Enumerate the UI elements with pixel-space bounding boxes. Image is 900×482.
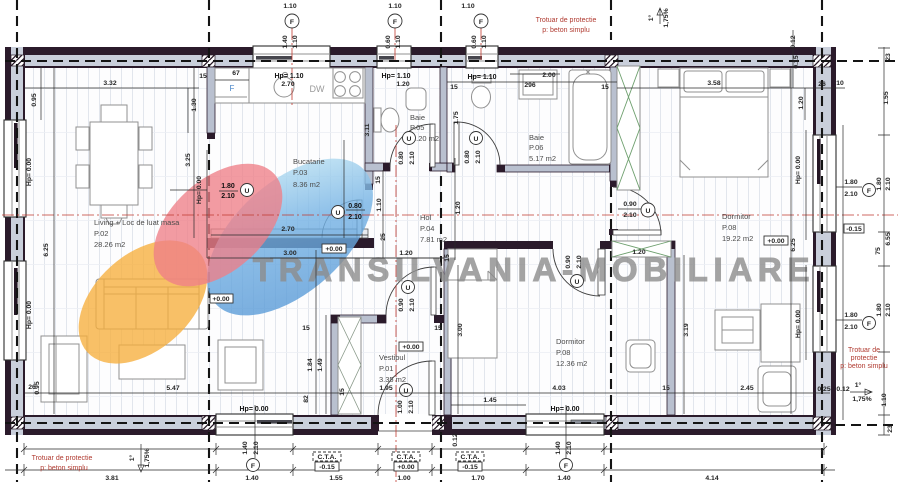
- svg-text:296: 296: [524, 82, 536, 89]
- svg-text:Hp= 0.00: Hp= 0.00: [26, 301, 33, 329]
- svg-text:1.70: 1.70: [471, 475, 484, 482]
- svg-text:2.10: 2.10: [348, 214, 362, 221]
- svg-text:2.10: 2.10: [409, 298, 416, 311]
- svg-text:26: 26: [818, 81, 826, 88]
- svg-text:1.55: 1.55: [329, 475, 342, 482]
- svg-text:1.10: 1.10: [481, 35, 488, 48]
- svg-text:1.10: 1.10: [292, 35, 299, 48]
- svg-text:1.40: 1.40: [555, 441, 562, 454]
- svg-text:DW: DW: [310, 84, 325, 94]
- svg-text:F: F: [290, 19, 294, 26]
- svg-text:1.40: 1.40: [245, 475, 258, 482]
- svg-text:Trotuar de: Trotuar de: [848, 347, 880, 354]
- svg-text:7.81 m2: 7.81 m2: [420, 235, 447, 244]
- svg-text:Living + Loc de luat masa: Living + Loc de luat masa: [94, 218, 180, 227]
- svg-text:2.10: 2.10: [885, 177, 892, 190]
- svg-text:0.95: 0.95: [31, 93, 38, 106]
- svg-text:Hp= 0.00: Hp= 0.00: [240, 406, 269, 413]
- svg-text:U: U: [406, 285, 411, 292]
- svg-text:1.40: 1.40: [242, 441, 249, 454]
- svg-text:23: 23: [887, 425, 894, 433]
- svg-text:+0.00: +0.00: [212, 296, 229, 303]
- svg-text:1.49: 1.49: [317, 358, 324, 371]
- svg-text:2.10: 2.10: [221, 193, 235, 200]
- svg-text:12.36 m2: 12.36 m2: [556, 359, 587, 368]
- svg-text:U: U: [404, 388, 409, 395]
- svg-text:Baie: Baie: [529, 133, 544, 142]
- svg-text:+0.00: +0.00: [397, 464, 414, 471]
- svg-text:F: F: [393, 19, 397, 26]
- svg-text:TRANSILVANIA-MOBILIARE: TRANSILVANIA-MOBILIARE: [253, 251, 815, 288]
- svg-text:67: 67: [232, 70, 240, 77]
- svg-text:4.03: 4.03: [552, 385, 565, 392]
- svg-text:1.80: 1.80: [844, 312, 857, 319]
- svg-text:F: F: [564, 463, 568, 470]
- svg-text:0.15: 0.15: [793, 55, 800, 68]
- svg-text:F: F: [251, 463, 255, 470]
- svg-text:1.10: 1.10: [881, 393, 888, 406]
- svg-text:U: U: [245, 188, 250, 195]
- svg-text:3.11: 3.11: [364, 123, 371, 136]
- svg-text:Hp= 0.00: Hp= 0.00: [196, 176, 203, 204]
- svg-text:4.14: 4.14: [705, 475, 718, 482]
- svg-text:0.80: 0.80: [464, 150, 471, 163]
- svg-text:Bucatarie: Bucatarie: [293, 157, 325, 166]
- svg-text:Hol: Hol: [420, 213, 432, 222]
- svg-text:Trotuar de protectie: Trotuar de protectie: [32, 455, 93, 462]
- svg-text:P.01: P.01: [379, 364, 393, 373]
- svg-text:1.40: 1.40: [557, 475, 570, 482]
- svg-text:1°: 1°: [128, 454, 136, 461]
- svg-text:1.20: 1.20: [396, 81, 409, 88]
- svg-text:0.25: 0.25: [817, 386, 830, 393]
- svg-text:1.80: 1.80: [876, 177, 883, 190]
- svg-text:U: U: [575, 279, 580, 286]
- svg-text:0.12: 0.12: [790, 35, 797, 48]
- svg-text:19.22 m2: 19.22 m2: [722, 234, 753, 243]
- svg-text:U: U: [336, 210, 341, 217]
- svg-text:10: 10: [836, 80, 844, 87]
- svg-text:-0.15: -0.15: [319, 464, 335, 471]
- svg-text:C.T.A.: C.T.A.: [461, 454, 480, 461]
- svg-text:5.47: 5.47: [166, 385, 179, 392]
- svg-text:Hp= 0.00: Hp= 0.00: [26, 158, 33, 186]
- svg-text:Dormitor: Dormitor: [556, 337, 585, 346]
- svg-text:U: U: [646, 208, 651, 215]
- svg-text:2.10: 2.10: [576, 255, 583, 268]
- svg-text:1.10: 1.10: [395, 35, 402, 48]
- svg-text:1.80: 1.80: [221, 183, 235, 190]
- svg-text:2.10: 2.10: [408, 400, 415, 413]
- svg-text:1.20: 1.20: [632, 249, 645, 256]
- svg-text:P.04: P.04: [420, 224, 434, 233]
- svg-text:28.26 m2: 28.26 m2: [94, 240, 125, 249]
- svg-text:23: 23: [885, 53, 892, 61]
- svg-text:C.T.A.: C.T.A.: [318, 454, 337, 461]
- svg-text:15: 15: [199, 73, 207, 80]
- svg-text:Hp= 0.00: Hp= 0.00: [795, 156, 802, 184]
- svg-text:2.45: 2.45: [740, 385, 753, 392]
- svg-text:1.00: 1.00: [397, 475, 410, 482]
- svg-text:1.10: 1.10: [376, 198, 383, 211]
- svg-text:1.84: 1.84: [307, 358, 314, 371]
- svg-text:Hp= 1.10: Hp= 1.10: [275, 73, 304, 80]
- svg-text:P.08: P.08: [556, 348, 570, 357]
- svg-text:0.80: 0.80: [348, 203, 362, 210]
- svg-text:Baie: Baie: [410, 113, 425, 122]
- svg-text:82: 82: [303, 395, 310, 403]
- svg-text:1.40: 1.40: [282, 35, 289, 48]
- svg-text:P.03: P.03: [293, 168, 307, 177]
- svg-text:Vestibul: Vestibul: [379, 353, 406, 362]
- svg-text:P.06: P.06: [529, 143, 543, 152]
- svg-text:3.00: 3.00: [283, 250, 296, 257]
- svg-text:1°: 1°: [647, 14, 655, 21]
- svg-text:1,75%: 1,75%: [144, 448, 151, 467]
- svg-text:Trotuar de protectie: Trotuar de protectie: [536, 17, 597, 24]
- svg-text:2.70: 2.70: [281, 226, 294, 233]
- svg-text:2.70: 2.70: [281, 81, 294, 88]
- svg-text:1,75%: 1,75%: [663, 8, 670, 27]
- svg-text:0.90: 0.90: [623, 201, 636, 208]
- svg-text:1.75: 1.75: [453, 111, 460, 124]
- svg-text:+0.00: +0.00: [325, 246, 342, 253]
- svg-text:1.20: 1.20: [455, 201, 462, 214]
- svg-text:0.95: 0.95: [34, 381, 41, 394]
- svg-text:2.10: 2.10: [409, 151, 416, 164]
- svg-text:p: beton simplu: p: beton simplu: [542, 27, 590, 34]
- svg-text:0.60: 0.60: [385, 35, 392, 48]
- svg-text:2.00: 2.00: [542, 72, 555, 79]
- svg-text:1.20: 1.20: [798, 96, 805, 109]
- svg-text:8.36 m2: 8.36 m2: [293, 180, 320, 189]
- svg-text:Hp= 0.00: Hp= 0.00: [551, 406, 580, 413]
- svg-text:5.17 m2: 5.17 m2: [529, 154, 556, 163]
- svg-text:1.45: 1.45: [483, 397, 496, 404]
- svg-text:0.12: 0.12: [452, 433, 459, 446]
- svg-text:15: 15: [444, 254, 451, 262]
- svg-text:0.90: 0.90: [398, 298, 405, 311]
- svg-text:0.60: 0.60: [471, 35, 478, 48]
- svg-text:2.10: 2.10: [844, 191, 857, 198]
- svg-text:1.10: 1.10: [461, 3, 474, 10]
- svg-text:P.08: P.08: [722, 223, 736, 232]
- svg-text:P.02: P.02: [94, 229, 108, 238]
- svg-text:15: 15: [450, 84, 458, 91]
- svg-text:2.20 m2: 2.20 m2: [412, 134, 439, 143]
- svg-text:U: U: [474, 136, 479, 143]
- svg-text:3.58: 3.58: [707, 80, 720, 87]
- svg-text:Dormitor: Dormitor: [722, 212, 751, 221]
- svg-text:Hp= 1.10: Hp= 1.10: [382, 73, 411, 80]
- svg-text:0.12: 0.12: [836, 386, 849, 393]
- svg-text:3.35 m2: 3.35 m2: [379, 375, 406, 384]
- svg-text:0.90: 0.90: [565, 255, 572, 268]
- svg-text:2.10: 2.10: [253, 441, 260, 454]
- svg-text:15: 15: [434, 325, 442, 332]
- svg-text:+0.00: +0.00: [767, 238, 784, 245]
- svg-text:-0.15: -0.15: [846, 226, 862, 233]
- svg-text:C.T.A.: C.T.A.: [397, 454, 416, 461]
- svg-text:1.20: 1.20: [399, 250, 412, 257]
- svg-text:3.25: 3.25: [185, 153, 192, 166]
- svg-text:1.55: 1.55: [883, 91, 890, 104]
- svg-text:-0.15: -0.15: [462, 464, 478, 471]
- svg-text:F: F: [230, 84, 235, 93]
- svg-text:1.30: 1.30: [191, 98, 198, 111]
- svg-text:3.32: 3.32: [103, 80, 116, 87]
- svg-text:75: 75: [875, 247, 882, 255]
- svg-text:0.80: 0.80: [398, 151, 405, 164]
- svg-text:6.25: 6.25: [43, 243, 50, 256]
- svg-text:1.10: 1.10: [388, 3, 401, 10]
- svg-text:p: beton simplu: p: beton simplu: [840, 363, 888, 370]
- svg-text:1.95: 1.95: [379, 385, 392, 392]
- svg-text:+0.00: +0.00: [402, 344, 419, 351]
- svg-text:2.10: 2.10: [844, 324, 857, 331]
- svg-text:1.10: 1.10: [283, 3, 296, 10]
- svg-text:p: beton simplu: p: beton simplu: [40, 465, 88, 472]
- svg-text:6.55: 6.55: [885, 232, 892, 245]
- svg-text:1,75%: 1,75%: [852, 396, 871, 403]
- svg-text:Hp= 0.00: Hp= 0.00: [795, 310, 802, 338]
- svg-text:2.10: 2.10: [885, 303, 892, 316]
- svg-text:F: F: [867, 321, 871, 328]
- svg-text:15: 15: [662, 385, 670, 392]
- svg-text:1°: 1°: [855, 381, 862, 389]
- svg-text:1.00: 1.00: [397, 400, 404, 413]
- svg-text:2.10: 2.10: [566, 441, 573, 454]
- svg-text:25: 25: [380, 233, 387, 241]
- svg-text:15: 15: [601, 84, 609, 91]
- svg-text:15: 15: [339, 388, 346, 396]
- svg-text:Hp= 1.10: Hp= 1.10: [468, 74, 497, 81]
- svg-text:F: F: [867, 188, 871, 195]
- svg-text:2.10: 2.10: [623, 212, 636, 219]
- svg-text:2.10: 2.10: [475, 150, 482, 163]
- svg-text:15: 15: [302, 325, 310, 332]
- svg-text:15: 15: [375, 176, 382, 184]
- svg-text:1.80: 1.80: [876, 303, 883, 316]
- svg-text:1.80: 1.80: [844, 179, 857, 186]
- svg-text:U: U: [407, 136, 412, 143]
- svg-text:F: F: [479, 19, 483, 26]
- svg-text:P.05: P.05: [410, 123, 424, 132]
- svg-text:3.81: 3.81: [105, 475, 118, 482]
- svg-text:protectie: protectie: [851, 355, 878, 362]
